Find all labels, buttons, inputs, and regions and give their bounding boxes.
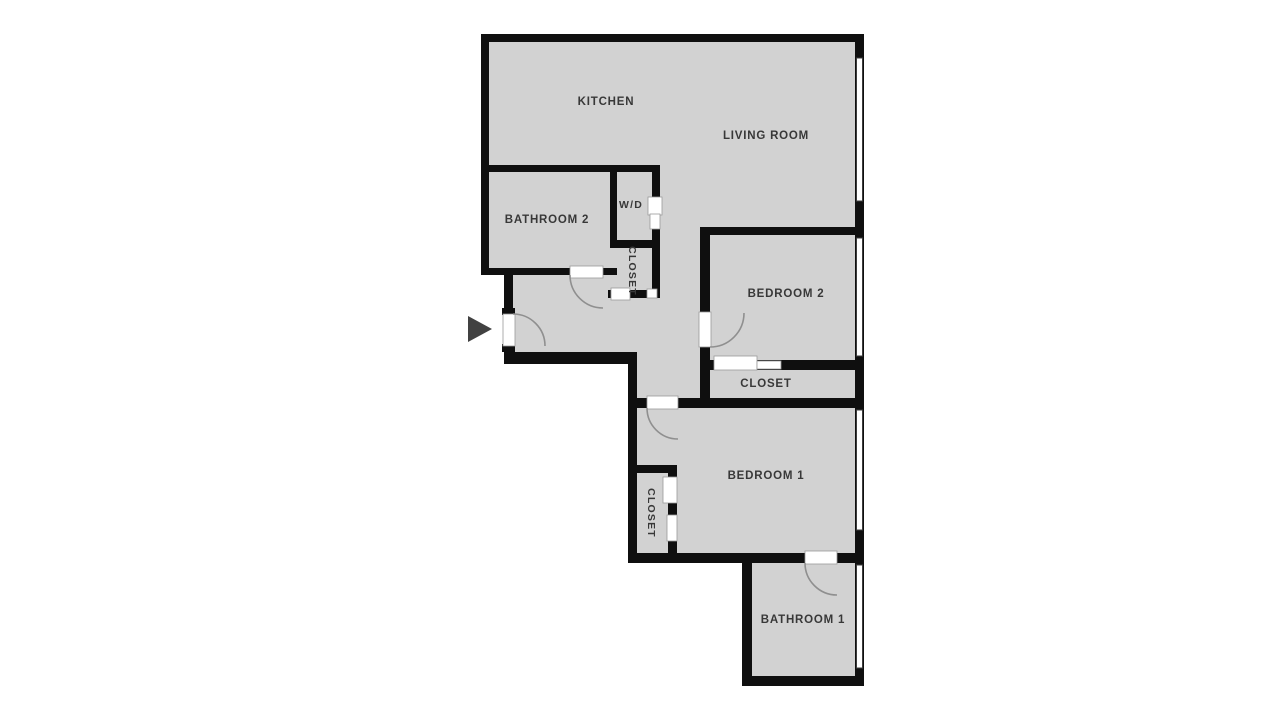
label-kitchen: KITCHEN <box>578 96 635 108</box>
label-bathroom-2: BATHROOM 2 <box>505 214 589 226</box>
wall-bathroom1-left <box>742 563 752 686</box>
wall-bedroom2-top <box>700 227 855 235</box>
label-closet-hall: CLOSET <box>626 246 638 296</box>
entry-arrow-icon <box>468 316 492 342</box>
wall-wd-right <box>652 165 660 298</box>
label-closet-bedroom-2: CLOSET <box>740 378 791 390</box>
wall-bedroom1-left <box>628 352 637 563</box>
door-bedroom1-opening <box>647 396 678 409</box>
wall-wd-left <box>610 165 617 248</box>
door-closet-bedroom1-panel <box>663 477 677 503</box>
door-closet-bedroom2-opening <box>757 361 781 369</box>
window-bedroom-1 <box>857 410 863 530</box>
wall-left-upper <box>481 34 489 275</box>
door-bathroom1-opening <box>805 551 837 564</box>
wall-bathroom1-bottom <box>742 676 864 686</box>
window-bedroom-2 <box>857 238 863 356</box>
window-bathroom-1 <box>857 565 863 668</box>
wall-hall-bottom <box>504 352 637 364</box>
label-bedroom-1: BEDROOM 1 <box>728 470 805 482</box>
window-living-room <box>857 58 863 201</box>
label-washer-dryer: W/D <box>619 199 643 211</box>
label-closet-bedroom-1: CLOSET <box>645 488 657 538</box>
door-closet-hall-gap <box>647 289 657 298</box>
label-living-room: LIVING ROOM <box>723 130 809 142</box>
label-bathroom-1: BATHROOM 1 <box>761 614 845 626</box>
door-closet-bedroom2-panel <box>714 356 757 370</box>
label-bedroom-2: BEDROOM 2 <box>748 288 825 300</box>
door-closet-bedroom1-opening <box>667 515 677 541</box>
door-entry-opening <box>503 314 515 346</box>
door-bedroom2-opening <box>699 312 711 347</box>
floorplan-page: KITCHEN LIVING ROOM BATHROOM 2 W/D CLOSE… <box>0 0 1280 720</box>
floorplan-canvas: KITCHEN LIVING ROOM BATHROOM 2 W/D CLOSE… <box>0 0 1280 720</box>
wall-kitchen-bottom <box>481 165 660 172</box>
door-wd-opening <box>648 197 662 215</box>
door-wd-panel <box>650 214 660 229</box>
door-bathroom2-opening <box>570 266 603 278</box>
wall-top <box>481 34 864 42</box>
